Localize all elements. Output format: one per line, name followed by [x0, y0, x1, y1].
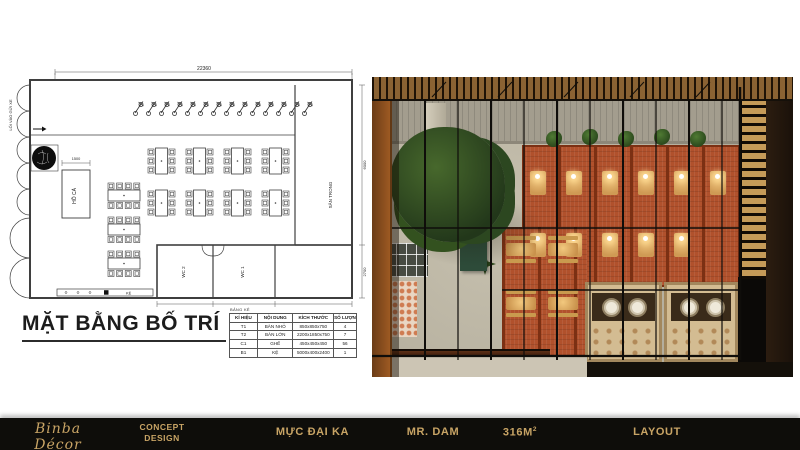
legend-row: T2 BÀN LỚN 2200x1850x750 7 [230, 331, 357, 340]
plan-title: MẶT BẰNG BỐ TRÍ [22, 312, 226, 342]
legend-cell: 4 [334, 322, 357, 331]
legend-title: BẢNG KÊ [230, 307, 250, 312]
area-value: 316M2 [485, 426, 555, 439]
legend-cell: 5000x400x2400 [293, 348, 334, 357]
legend-header: KÍCH THƯỚC [293, 314, 334, 323]
shelf [57, 289, 153, 296]
legend-cell: KỆ [257, 348, 293, 357]
legend-cell: 450x450x450 [293, 340, 334, 349]
footer-bar: Binba Décor DESIGN FOR LIFE CONCEPT DESI… [0, 418, 800, 450]
stage-layout: LAYOUT [612, 426, 702, 438]
legend-cell: B1 [230, 348, 258, 357]
concept-line2: DESIGN [130, 433, 194, 444]
legend-cell: T1 [230, 322, 258, 331]
legend-cell: C1 [230, 340, 258, 349]
legend-cell: GHẾ [257, 340, 293, 349]
stage-concept-design: CONCEPT DESIGN [130, 422, 194, 445]
legend-cell: BÀN LỚN [257, 331, 293, 340]
legend-header: KÍ HIỆU [230, 314, 258, 323]
legend-cell: 7 [334, 331, 357, 340]
entrance-arrow-icon [33, 127, 47, 132]
presentation-slide: 22360 LỐI VÀO GỬI XE HỒ CÁ [0, 0, 800, 450]
floor-plan-drawing: 22360 LỐI VÀO GỬI XE HỒ CÁ [8, 60, 368, 310]
dimension-right [359, 85, 365, 298]
dimension-bottom [157, 301, 352, 307]
legend-cell: 1 [334, 348, 357, 357]
render-top-view [372, 77, 793, 377]
legend-header-row: KÍ HIỆU NỘI DUNG KÍCH THƯỚC SỐ LƯỢNG [230, 314, 357, 323]
wc1-label: WC 1 [240, 266, 245, 278]
tree-symbol [31, 145, 58, 171]
legend-table: KÍ HIỆU NỘI DUNG KÍCH THƯỚC SỐ LƯỢNG T1 … [229, 313, 357, 358]
area-number: 316M [503, 427, 533, 439]
dining-tables [108, 148, 289, 277]
dim-pond-width: 1500 [72, 157, 80, 161]
project-name: MỰC ĐẠI KA [255, 426, 370, 438]
legend-cell: T2 [230, 331, 258, 340]
motorbike-row [134, 102, 313, 116]
entrance-doors [10, 85, 30, 298]
legend-cell: 56 [334, 340, 357, 349]
brand-logo-text: Binba Décor [10, 421, 106, 450]
legend-header: SỐ LƯỢNG [334, 314, 357, 323]
area-superscript: 2 [533, 426, 537, 433]
courtyard-label: SÂN TRONG [327, 181, 333, 208]
legend-row: C1 GHẾ 450x450x450 56 [230, 340, 357, 349]
shelf-label: KỆ [126, 291, 132, 296]
legend-cell: 850x850x750 [293, 322, 334, 331]
client-name: MR. DAM [393, 426, 473, 438]
entrance-label: LỐI VÀO GỬI XE [8, 99, 13, 131]
glass-roof-grid [372, 77, 793, 377]
legend-row: T1 BÀN NHỎ 850x850x750 4 [230, 322, 357, 331]
concept-line1: CONCEPT [130, 422, 194, 433]
legend-row: B1 KỆ 5000x400x2400 1 [230, 348, 357, 357]
legend-header: NỘI DUNG [257, 314, 293, 323]
brand-logo: Binba Décor DESIGN FOR LIFE [10, 421, 106, 450]
dim-total-width: 22360 [197, 66, 211, 72]
legend-cell: BÀN NHỎ [257, 322, 293, 331]
dim-right-upper: 6000 [362, 160, 367, 170]
dim-right-lower: 2700 [362, 267, 367, 277]
wc2-label: WC 2 [181, 266, 186, 278]
wc-block [157, 245, 352, 298]
legend-cell: 2200x1850x750 [293, 331, 334, 340]
fish-pond-label: HỒ CÁ [71, 187, 78, 204]
courtyard-room [295, 85, 352, 245]
